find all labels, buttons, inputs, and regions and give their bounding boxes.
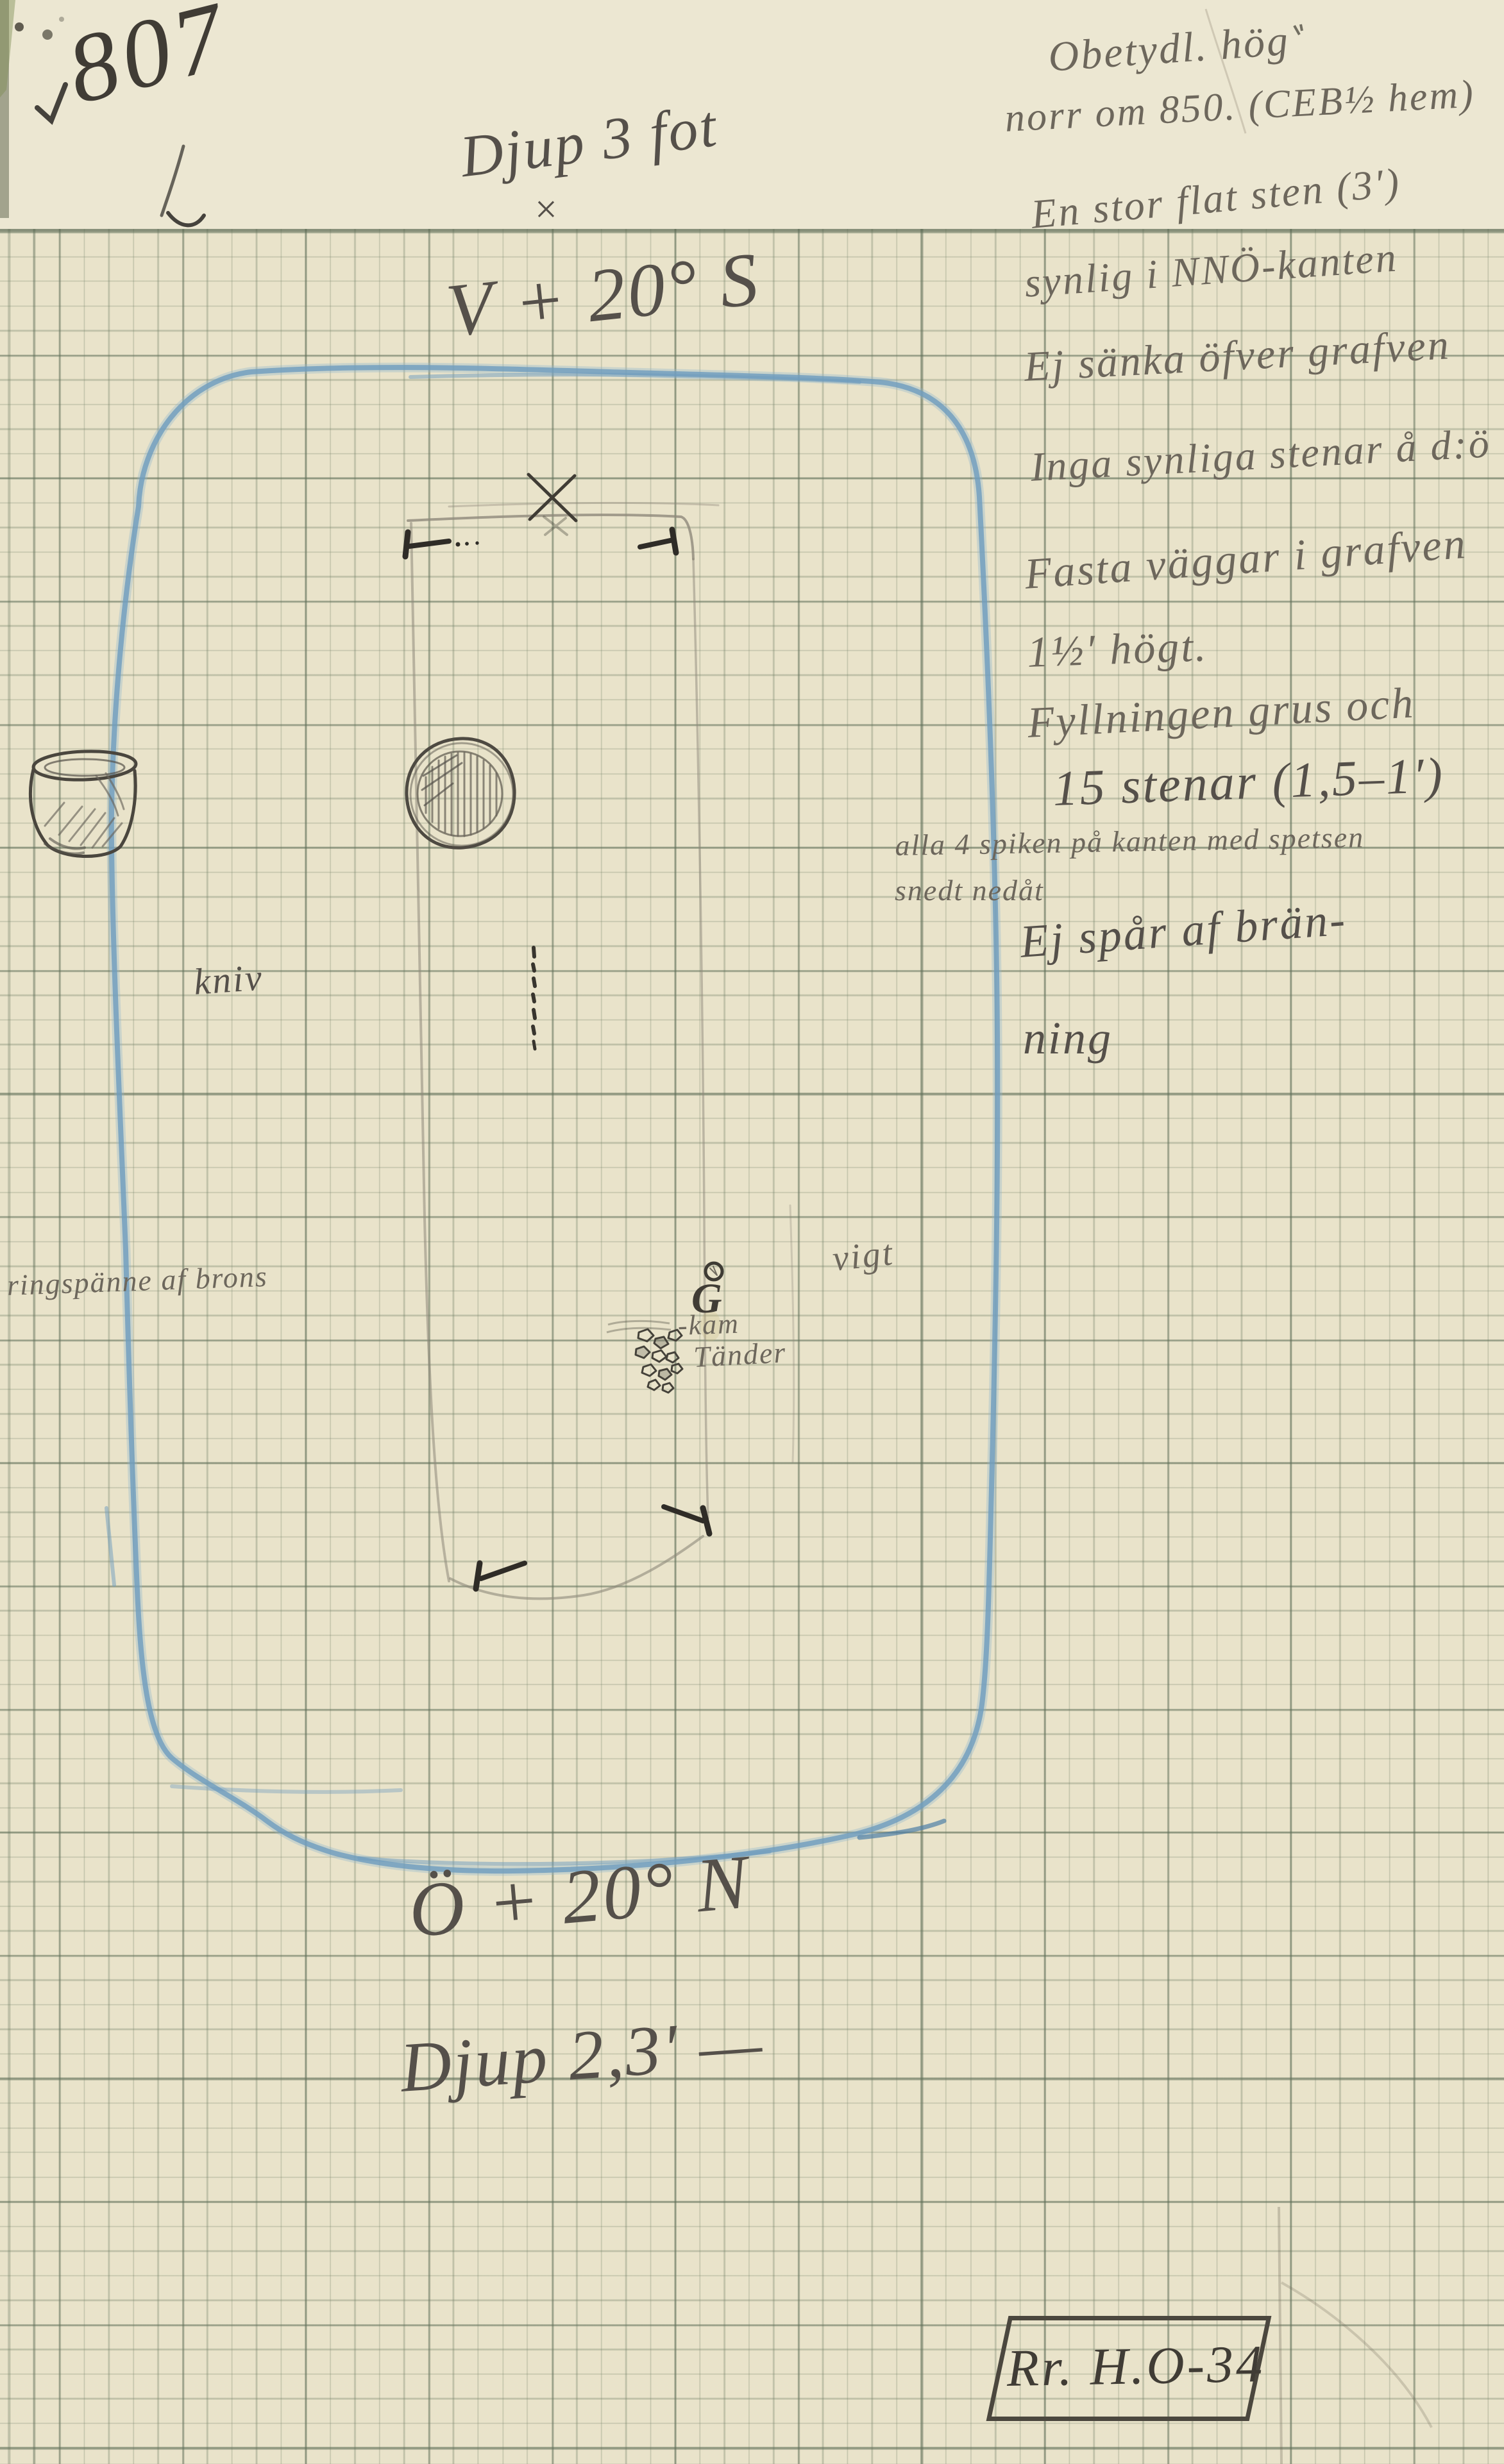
knife-sketch [533, 948, 535, 1049]
vessel-profile-sketch [30, 750, 136, 856]
note-wall-height: 1½′ högt. [1026, 621, 1208, 678]
nail-top-left-icon [405, 532, 478, 557]
note-nails-line2: snedt nedåt [895, 873, 1044, 907]
coffin-nails [405, 530, 709, 1589]
nail-bottom-right-icon [664, 1507, 709, 1534]
stone-cluster-sketch [607, 1321, 682, 1393]
find-label-comb: -kam [677, 1307, 740, 1342]
find-label-knife: kniv [192, 955, 265, 1003]
grave-pit-outline-blue [106, 367, 997, 1871]
notebook-page: 807 Djup 3 fot × V + 20° S Obetydl. hög … [0, 0, 1504, 2464]
grid-reference-label: Rr. H.O-34 [1006, 2334, 1265, 2399]
coffin-outline-pencil [408, 503, 718, 1598]
nail-top-right-icon [640, 530, 676, 553]
find-label-weight: vigt [831, 1232, 896, 1280]
note-burning-line2: ning [1023, 1012, 1113, 1065]
nail-bottom-left-icon [476, 1563, 525, 1589]
find-label-teeth: Tänder [693, 1335, 787, 1374]
vessel-top-view-sketch [407, 739, 514, 848]
survey-cross-mark: × [532, 187, 561, 233]
grid-reference-box: Rr. H.O-34 [986, 2316, 1272, 2421]
